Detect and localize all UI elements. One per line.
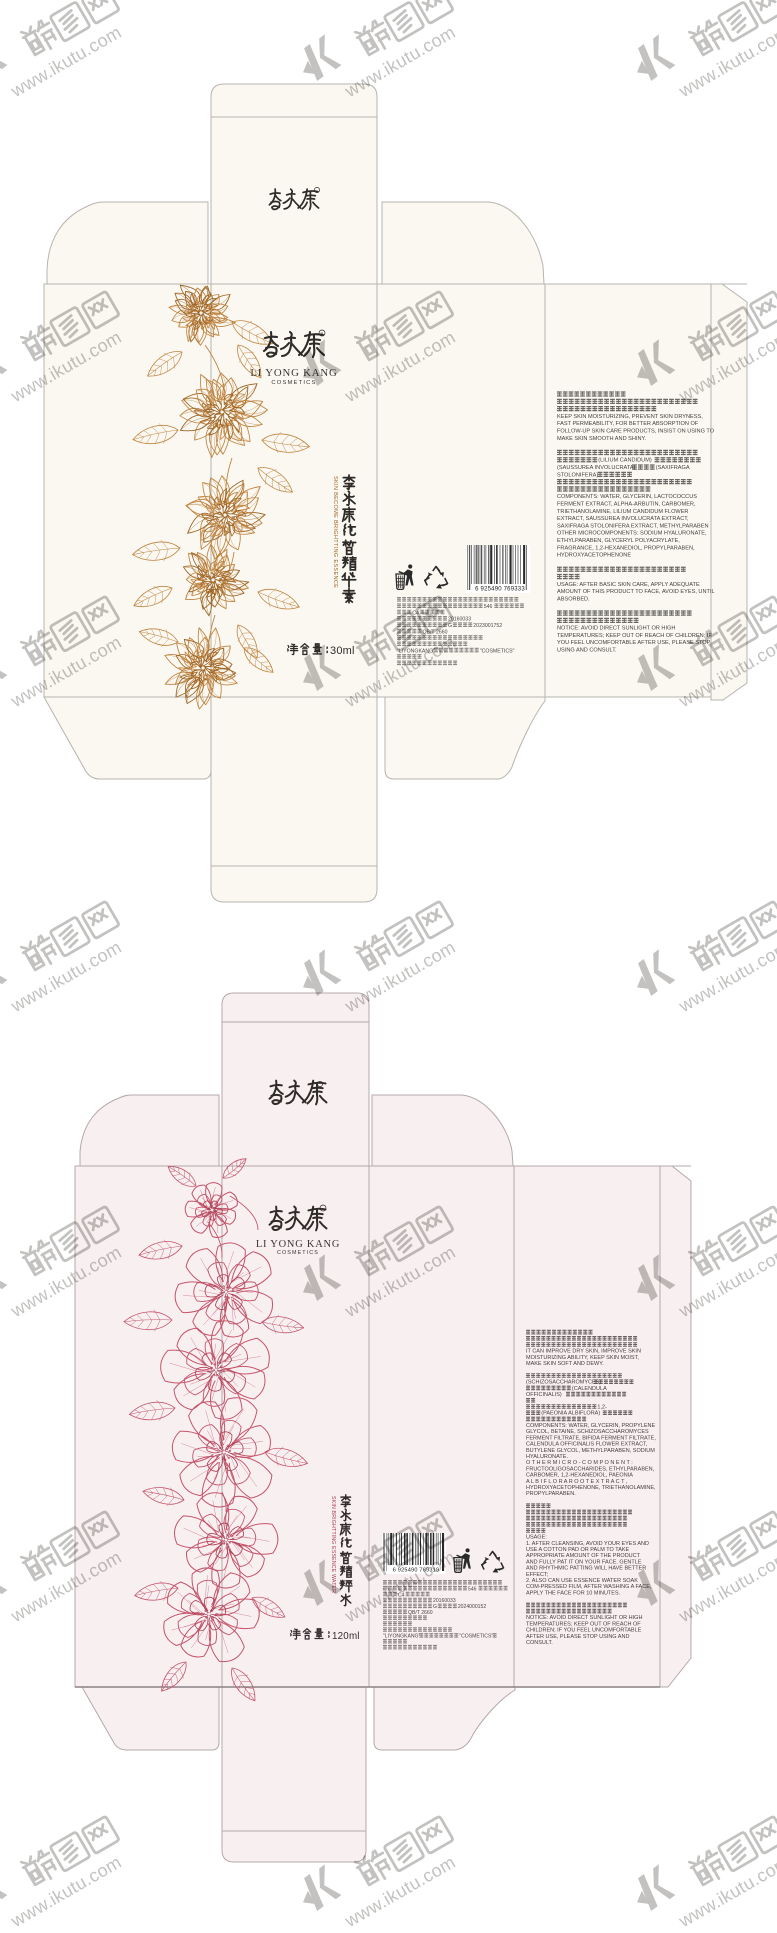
svg-text:PROPYLPARABEN.: PROPYLPARABEN. — [526, 1491, 576, 1497]
svg-text:COMPONENTS: WATER, GLYCERIN, P: COMPONENTS: WATER, GLYCERIN, PROPYLENE — [526, 1423, 655, 1429]
svg-text:www.ikutu.com: www.ikutu.com — [675, 937, 777, 1017]
svg-text:APPROPRIATE AMOUNT OF THE PROD: APPROPRIATE AMOUNT OF THE PRODUCT — [526, 1553, 641, 1559]
svg-text:OTHER MICROCOMPONENTS: SODIUM: OTHER MICROCOMPONENTS: SODIUM HYALURONAT… — [557, 531, 707, 537]
svg-text:(LILIUM CANDIDUM): (LILIUM CANDIDUM) — [598, 458, 652, 464]
svg-text:TEMPERATURES; KEEP OUT OF REAC: TEMPERATURES; KEEP OUT OF REACH OF — [526, 1621, 641, 1627]
svg-text:COSMETICS: COSMETICS — [271, 380, 316, 386]
svg-text:1,2-: 1,2- — [597, 1404, 607, 1410]
svg-text:2. ALSO CAN USE ESSENCE WATER: 2. ALSO CAN USE ESSENCE WATER SOAK — [526, 1578, 638, 1584]
svg-text:APPLY THE FACE FOR 10 MINUTES.: APPLY THE FACE FOR 10 MINUTES. — [526, 1590, 621, 1596]
svg-text:AND RHYTHMIC PATTING WILL HAVE: AND RHYTHMIC PATTING WILL HAVE BETTER — [526, 1566, 646, 1572]
svg-text:SKIN BRIGHTTING ESSENCE WATER: SKIN BRIGHTTING ESSENCE WATER — [330, 1496, 336, 1593]
svg-text:"LIYONGKANG": "LIYONGKANG" — [383, 1634, 420, 1640]
svg-text:STOLONIFERA): STOLONIFERA) — [557, 472, 598, 478]
svg-text:(CALENDULA: (CALENDULA — [572, 1386, 607, 1392]
svg-text:SAXIFRAGA STOLONIFERA EXTRACT,: SAXIFRAGA STOLONIFERA EXTRACT, METHYLPAR… — [557, 523, 708, 529]
svg-text:FERMENT EXTRACT, ALPHA-ARBUTIN: FERMENT EXTRACT, ALPHA-ARBUTIN, CARBOMER… — [557, 502, 696, 508]
svg-text:R: R — [321, 331, 324, 336]
svg-text:A L B I F L O R A R O O T: A L B I F L O R A R O O T E X T R A C T … — [526, 1479, 628, 1485]
svg-text:USING AND CONSULT.: USING AND CONSULT. — [557, 648, 617, 654]
svg-text:2024000152: 2024000152 — [458, 1604, 486, 1610]
svg-text:HYALURONATE.: HYALURONATE. — [526, 1454, 568, 1460]
svg-text:MOISTURIZING ABILITY, KEEP SKI: MOISTURIZING ABILITY, KEEP SKIN MOIST, — [526, 1355, 639, 1361]
svg-text:1. AFTER CLEANSING, AVOID YOUR: 1. AFTER CLEANSING, AVOID YOUR EYES AND — [526, 1541, 649, 1547]
svg-text:TRIETHANOLAMINE, LILIUM CANDID: TRIETHANOLAMINE, LILIUM CANDIDUM FLOWER — [557, 509, 688, 515]
svg-text:AMOUNT OF THIS PRODUCT TO FACE: AMOUNT OF THIS PRODUCT TO FACE, AVOID EY… — [557, 589, 715, 595]
svg-text:AND FULLY PAT IT ON YOUR FACE.: AND FULLY PAT IT ON YOUR FACE. GENTLE — [526, 1559, 642, 1565]
svg-text:(PAEONIA ALBIFLORA): (PAEONIA ALBIFLORA) — [541, 1411, 600, 1417]
svg-text:G: G — [433, 1604, 437, 1610]
svg-text:30ml: 30ml — [330, 645, 355, 657]
svg-text:TEMPERATURES; KEEP OUT OF REAC: TEMPERATURES; KEEP OUT OF REACH OF CHILD… — [557, 633, 712, 639]
svg-text:COMPONENTS: WATER, GLYCERIN,: COMPONENTS: WATER, GLYCERIN, LACTOCOCCUS — [557, 494, 697, 500]
svg-text:USAGE:: USAGE: — [526, 1535, 547, 1541]
svg-text:COM-PRESSED FILM, AFTER WASHI: COM-PRESSED FILM, AFTER WASHING A FACE, — [526, 1584, 652, 1590]
svg-text:www.ikutu.com: www.ikutu.com — [675, 1852, 777, 1932]
svg-text:MAKE SKIN SMOOTH AND SHINY.: MAKE SKIN SMOOTH AND SHINY. — [557, 436, 647, 442]
svg-text:"COSMETICS": "COSMETICS" — [480, 648, 515, 654]
svg-text:IT CAN IMPROVE DRY SKIN, IMPRO: IT CAN IMPROVE DRY SKIN, IMPROVE SKIN — [526, 1349, 641, 1355]
svg-text:CHILDREN; IF YOU FEEL UNCOMFOR: CHILDREN; IF YOU FEEL UNCOMFORTABLE — [526, 1628, 642, 1634]
svg-text:CALENDULA OFFICINALIS FLOWER E: CALENDULA OFFICINALIS FLOWER EXTRACT, — [526, 1442, 648, 1448]
svg-text:(SAUSSUREA INVOLUCRATA): (SAUSSUREA INVOLUCRATA) — [557, 465, 636, 471]
svg-text:FRAGRANCE, 1,2-HEXANEDIOL, PRO: FRAGRANCE, 1,2-HEXANEDIOL, PROPYLPARABEN… — [557, 545, 695, 551]
svg-text:FERMENT FILTRATE, BIFIDA FERME: FERMENT FILTRATE, BIFIDA FERMENT FILTRAT… — [526, 1435, 656, 1441]
svg-text:MAKE SKIN SOFT AND DEWY.: MAKE SKIN SOFT AND DEWY. — [526, 1361, 604, 1367]
svg-text:NOTICE: AVOID DIRECT SUNLIGHT: NOTICE: AVOID DIRECT SUNLIGHT OR HIGH — [557, 626, 675, 632]
svg-text:HYDROXYACETOPHENONE: HYDROXYACETOPHENONE — [557, 553, 631, 559]
svg-text:FAST PERMEABILITY, FOR BETTER: FAST PERMEABILITY, FOR BETTER ABSORPTION… — [557, 421, 699, 427]
svg-text:(SCHIZOSACCHAROMYCES): (SCHIZOSACCHAROMYCES) — [526, 1380, 601, 1386]
svg-text:BUTYLENE GLYCOL, METHYLPARABEN: BUTYLENE GLYCOL, METHYLPARABEN, SODIUM — [526, 1448, 655, 1454]
svg-text:COSMETICS: COSMETICS — [277, 1250, 319, 1256]
svg-text:LI YONG KANG: LI YONG KANG — [250, 367, 337, 379]
svg-text:120ml: 120ml — [332, 1631, 360, 1642]
svg-text:EXTRACT, SAUSSUREA INVOLUCRATA: EXTRACT, SAUSSUREA INVOLUCRATA EXTRACT, — [557, 516, 689, 522]
svg-text:546: 546 — [484, 604, 493, 610]
svg-text:CARBOMER, 1,2-HEXANEDIOL, PAEO: CARBOMER, 1,2-HEXANEDIOL, PAEONIA — [526, 1473, 633, 1479]
svg-text:USE A COTTON PAD OR PALM TO TA: USE A COTTON PAD OR PALM TO TAKE — [526, 1547, 630, 1553]
svg-text:QB/T 2660: QB/T 2660 — [408, 1610, 433, 1616]
svg-text:ABSORBED.: ABSORBED. — [557, 596, 590, 602]
svg-text:"COSMETICS": "COSMETICS" — [459, 1634, 493, 1640]
svg-text:O T H E R M I C R O - C O M: O T H E R M I C R O - C O M P O N E N T … — [526, 1460, 633, 1466]
svg-text:SKIN BECOME BRIGHTTING ESSENCE: SKIN BECOME BRIGHTTING ESSENCE — [332, 476, 338, 588]
svg-text:EFFECT;: EFFECT; — [526, 1572, 549, 1578]
svg-text:(SAXIFRAGA: (SAXIFRAGA — [656, 465, 690, 471]
svg-text:2023001752: 2023001752 — [473, 623, 502, 629]
svg-text:KEEP SKIN MOISTURIZING, PREVEN: KEEP SKIN MOISTURIZING, PREVENT SKIN DRY… — [557, 414, 703, 420]
svg-text:AFTER USE, PLEASE STOP USING A: AFTER USE, PLEASE STOP USING AND — [526, 1634, 629, 1640]
svg-text:GLYCOL, BETAINE, SCHIZOSACCHAR: GLYCOL, BETAINE, SCHIZOSACCHAROMYCES — [526, 1429, 649, 1435]
svg-text:546: 546 — [468, 1586, 477, 1592]
svg-text:CONSULT.: CONSULT. — [526, 1640, 553, 1646]
svg-text:OFFICINALIS): OFFICINALIS) — [526, 1392, 562, 1398]
svg-text:FRUCTOOLIGOSACCHARIDES, ETHYLP: FRUCTOOLIGOSACCHARIDES, ETHYLPARABEN, — [526, 1466, 655, 1472]
svg-text:LI YONG KANG: LI YONG KANG — [256, 1239, 340, 1250]
svg-text:6 925490 769333: 6 925490 769333 — [475, 587, 525, 593]
svg-text:ETHYLPARABEN, GLYCERYL POLYA: ETHYLPARABEN, GLYCERYL POLYACRYLATE, — [557, 538, 680, 544]
svg-text:FOLLOW-UP SKIN CARE PRODUCTS,: FOLLOW-UP SKIN CARE PRODUCTS, INSIST ON … — [557, 429, 715, 435]
svg-text:www.ikutu.com: www.ikutu.com — [675, 22, 777, 102]
svg-text:NOTICE: AVOID DIRECT SUNLIGHT: NOTICE: AVOID DIRECT SUNLIGHT OR HIGH — [526, 1615, 642, 1621]
svg-text:USAGE: AFTER BASIC SKIN CARE,: USAGE: AFTER BASIC SKIN CARE, APPLY ADEQ… — [557, 582, 700, 588]
svg-text:YOU FEEL UNCOMFORTABLE AFTER U: YOU FEEL UNCOMFORTABLE AFTER USE, PLEASE… — [557, 640, 711, 646]
svg-text:HYDROXYACETOPHENONE, TRIETHANO: HYDROXYACETOPHENONE, TRIETHANOLAMINE, — [526, 1485, 656, 1491]
